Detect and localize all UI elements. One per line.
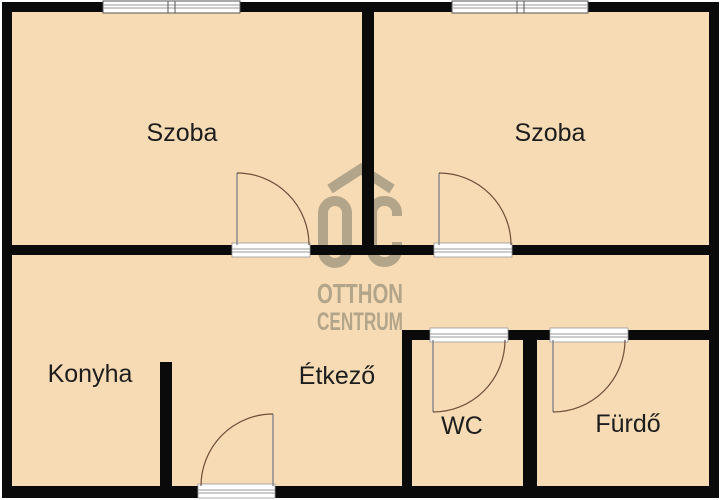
room-label-wc: WC <box>441 412 483 440</box>
wall-furdo-header-right <box>628 330 719 340</box>
window-szoba-right <box>452 1 588 13</box>
wall-kitchen-partition <box>160 362 172 492</box>
wall-wc-furdo-divider <box>523 340 537 492</box>
wall-mid-center <box>310 245 434 255</box>
room-label-etkezo: Étkező <box>299 361 375 390</box>
wall-mid-right <box>512 245 719 255</box>
sill-entrance-door <box>198 484 275 498</box>
room-label-szoba-left: Szoba <box>147 119 218 147</box>
sill-szoba-right-door <box>434 243 512 257</box>
watermark-line2: CENTRUM <box>317 308 403 336</box>
wall-wc-furdo-header <box>508 330 550 340</box>
watermark-line1: OTTHON <box>317 278 403 309</box>
floor-plan-canvas: OTTHON CENTRUM <box>0 0 721 500</box>
wall-wc-left <box>402 330 412 492</box>
room-label-szoba-right: Szoba <box>515 119 586 147</box>
logo-letter-c-gap <box>392 216 408 242</box>
wall-exterior-bottom <box>2 486 719 498</box>
room-label-furdo: Fürdő <box>595 410 660 438</box>
floor-plan: OTTHON CENTRUM <box>0 0 721 500</box>
wall-mid-left <box>2 245 232 255</box>
wall-wc-header-left <box>402 330 430 340</box>
sill-wc-door <box>430 328 508 342</box>
wall-between-rooms <box>362 2 374 255</box>
window-szoba-left <box>103 1 240 13</box>
sill-szoba-left-door <box>232 243 310 257</box>
room-label-konyha: Konyha <box>48 360 133 388</box>
sill-furdo-door <box>550 328 628 342</box>
